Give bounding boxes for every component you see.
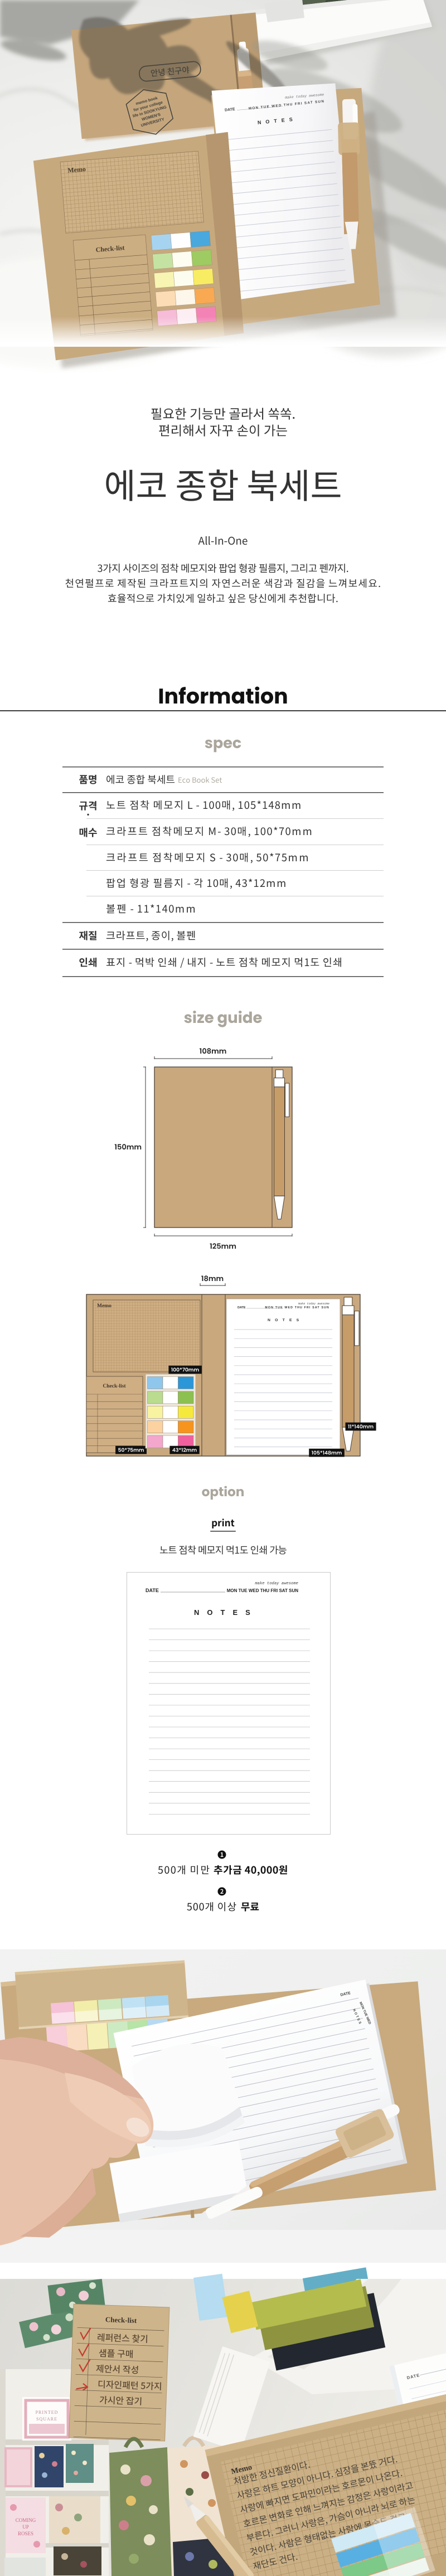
svg-text:make today awesome: make today awesome [255, 1582, 298, 1586]
svg-text:DATE: DATE [237, 1306, 246, 1309]
svg-text:ROSES: ROSES [18, 2531, 33, 2536]
svg-text:PRINTED: PRINTED [36, 2410, 59, 2415]
svg-text:MON TUE WED THU FRI SAT SUN: MON TUE WED THU FRI SAT SUN [265, 1306, 329, 1309]
svg-text:Memo: Memo [97, 1303, 111, 1309]
svg-text:SQUARE: SQUARE [36, 2417, 57, 2422]
svg-text:NOTES: NOTES [268, 1318, 303, 1322]
svg-text:make today awesome: make today awesome [298, 1302, 329, 1306]
svg-text:MON TUE WED THU FRI SAT SUN: MON TUE WED THU FRI SAT SUN [227, 1588, 299, 1593]
svg-text:DATE: DATE [146, 1588, 159, 1593]
svg-text:Check-list: Check-list [105, 2315, 137, 2325]
svg-text:Check-list: Check-list [103, 1384, 126, 1389]
svg-text:COMING: COMING [16, 2517, 36, 2523]
svg-text:Memo: Memo [67, 165, 86, 174]
svg-text:UP: UP [22, 2524, 29, 2530]
svg-text:NOTES: NOTES [194, 1608, 258, 1617]
